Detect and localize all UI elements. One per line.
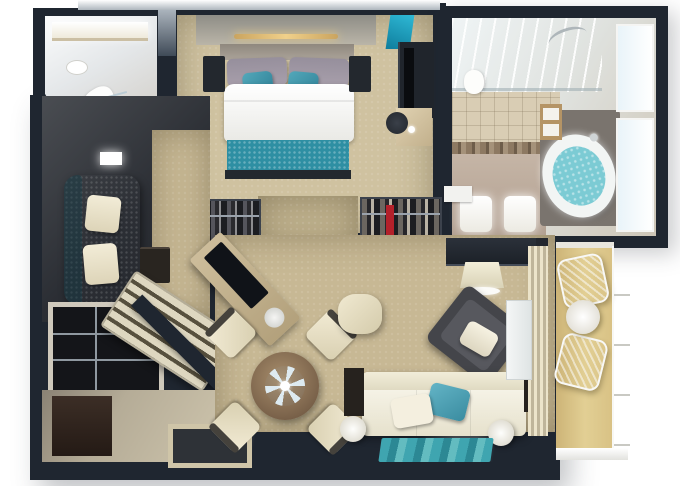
wardrobe-rail bbox=[362, 213, 440, 215]
champagne-bucket-icon bbox=[260, 303, 288, 331]
service-shaft bbox=[158, 10, 176, 56]
balcony-railing-bottom bbox=[556, 448, 628, 460]
sink-right bbox=[504, 196, 536, 232]
balcony-table bbox=[566, 300, 600, 334]
end-table-left bbox=[344, 368, 364, 416]
balcony bbox=[556, 248, 614, 448]
shelf-lamp-shade bbox=[460, 262, 504, 288]
balcony-door bbox=[506, 300, 532, 380]
bed-runner bbox=[227, 140, 349, 170]
sofa-pillow-lower bbox=[82, 243, 119, 286]
counter-shelf bbox=[52, 38, 148, 41]
red-garment bbox=[386, 205, 394, 237]
footboard bbox=[225, 170, 351, 179]
sofa-white-pillow bbox=[390, 393, 435, 429]
flower-vase bbox=[408, 126, 415, 133]
tub-water bbox=[545, 139, 613, 212]
sofa-backrest bbox=[64, 175, 82, 305]
window-upper bbox=[616, 24, 654, 112]
mosaic-accent-band bbox=[452, 142, 546, 154]
duvet-fold bbox=[224, 100, 354, 102]
shelf-line bbox=[53, 359, 159, 361]
tv-screen bbox=[404, 48, 414, 110]
cabinet-door bbox=[543, 124, 559, 136]
vanity-stool bbox=[386, 112, 408, 134]
dining-table bbox=[251, 352, 319, 420]
nightstand-left bbox=[203, 56, 225, 92]
teal-rug bbox=[378, 438, 493, 462]
bathroom-door bbox=[444, 186, 472, 202]
sofa-pillow-upper bbox=[84, 194, 122, 233]
shelf-divider bbox=[95, 307, 97, 395]
wall-light bbox=[100, 152, 122, 165]
sofa-seam bbox=[470, 390, 471, 436]
main-bathroom bbox=[452, 18, 656, 236]
cabinet-door bbox=[543, 108, 559, 120]
cylinder-stool-left bbox=[340, 416, 366, 442]
vanity-counter bbox=[52, 22, 148, 38]
bedroom-headwall bbox=[196, 15, 376, 45]
ottoman-pouf bbox=[338, 294, 382, 334]
window-lower bbox=[616, 118, 654, 232]
ceiling-light-bar bbox=[234, 34, 338, 39]
entry-rug bbox=[52, 396, 112, 456]
wood-cabinet bbox=[540, 104, 562, 140]
duvet bbox=[224, 84, 354, 142]
flower-centerpiece bbox=[265, 366, 305, 406]
media-console bbox=[398, 42, 434, 118]
toilet bbox=[464, 70, 484, 94]
exterior-top-edge bbox=[78, 0, 440, 10]
nightstand-right bbox=[349, 56, 371, 92]
flower-center bbox=[280, 381, 290, 391]
wire-chair-lower bbox=[552, 331, 609, 393]
floorplan-render bbox=[0, 0, 680, 486]
sink-icon bbox=[66, 60, 88, 75]
balcony-railing bbox=[612, 246, 630, 452]
